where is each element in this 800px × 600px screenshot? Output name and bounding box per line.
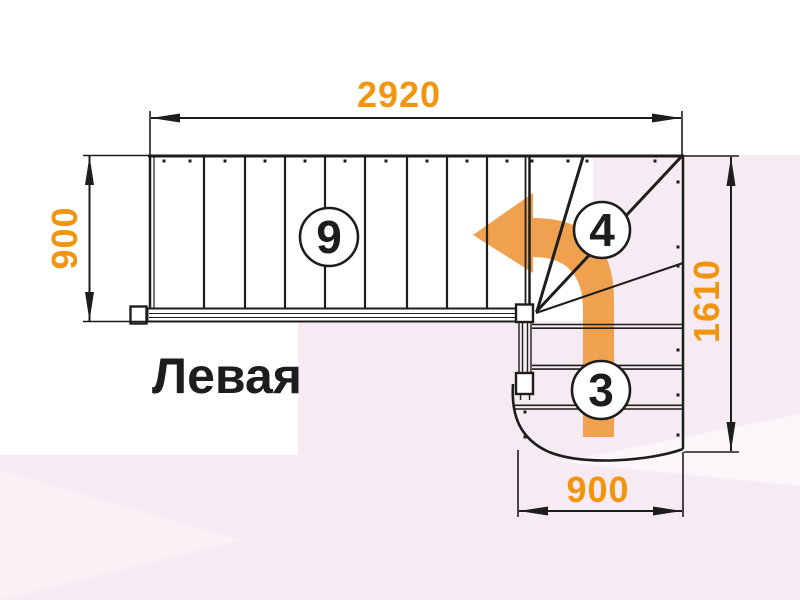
winder-count: 4 [589, 204, 615, 256]
dimension-left-value: 900 [44, 206, 85, 269]
dimension-right-value: 1610 [686, 259, 727, 343]
bottom-flight-count: 3 [588, 364, 614, 416]
newel-post-top [516, 305, 533, 323]
dimension-bottom-value: 900 [566, 469, 629, 510]
stair-plan-diagram: 9 4 3 2920 900 1610 900 [0, 0, 800, 600]
dimension-top-value: 2920 [357, 74, 441, 115]
newel-post-bottom [516, 373, 533, 394]
stair-plan-page: 9 4 3 2920 900 1610 900 [0, 0, 800, 600]
straight-flight-count: 9 [316, 211, 342, 263]
stringer [148, 309, 518, 322]
page-title: Левая [152, 348, 302, 404]
